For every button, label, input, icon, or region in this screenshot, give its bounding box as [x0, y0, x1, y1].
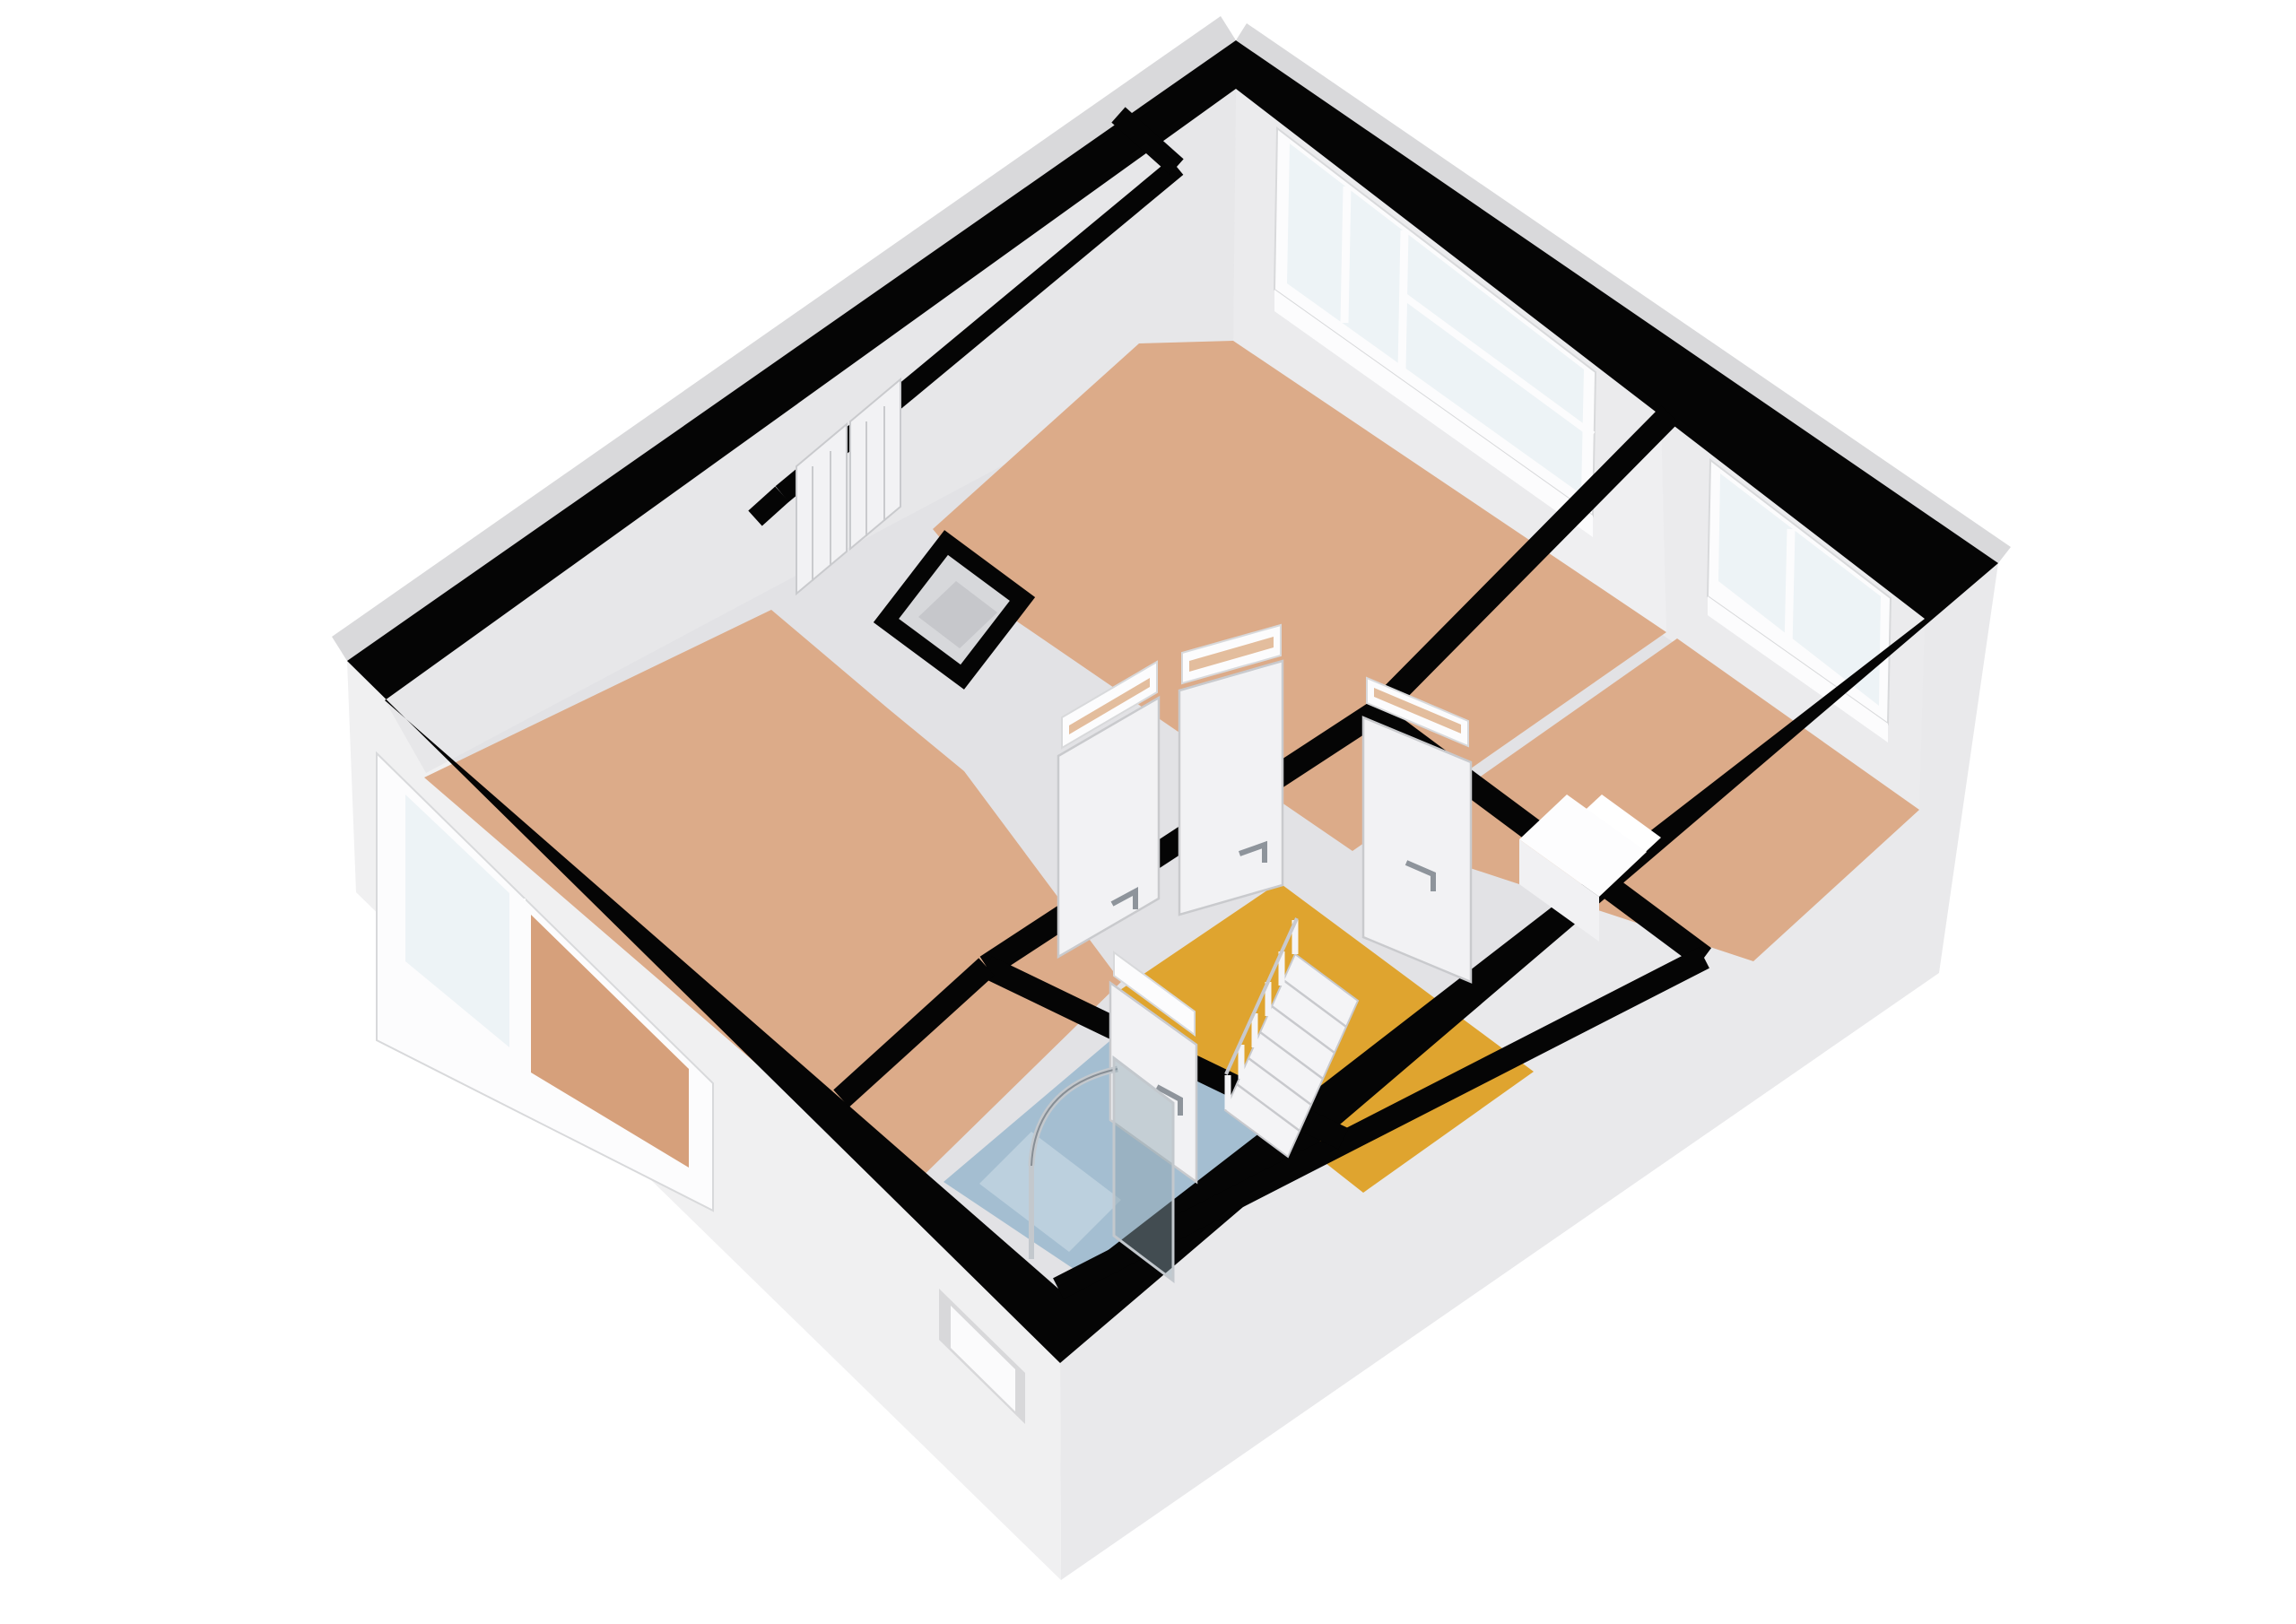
floorplan-render [0, 0, 2296, 1624]
door-living [1179, 625, 1283, 915]
door-bedroom-right [1363, 678, 1471, 982]
door-leaf [1179, 661, 1283, 915]
window-mullion [1788, 529, 1791, 647]
window-mullion [1344, 187, 1347, 323]
door-leaf [1363, 717, 1471, 982]
floorplan-svg [0, 0, 2296, 1624]
